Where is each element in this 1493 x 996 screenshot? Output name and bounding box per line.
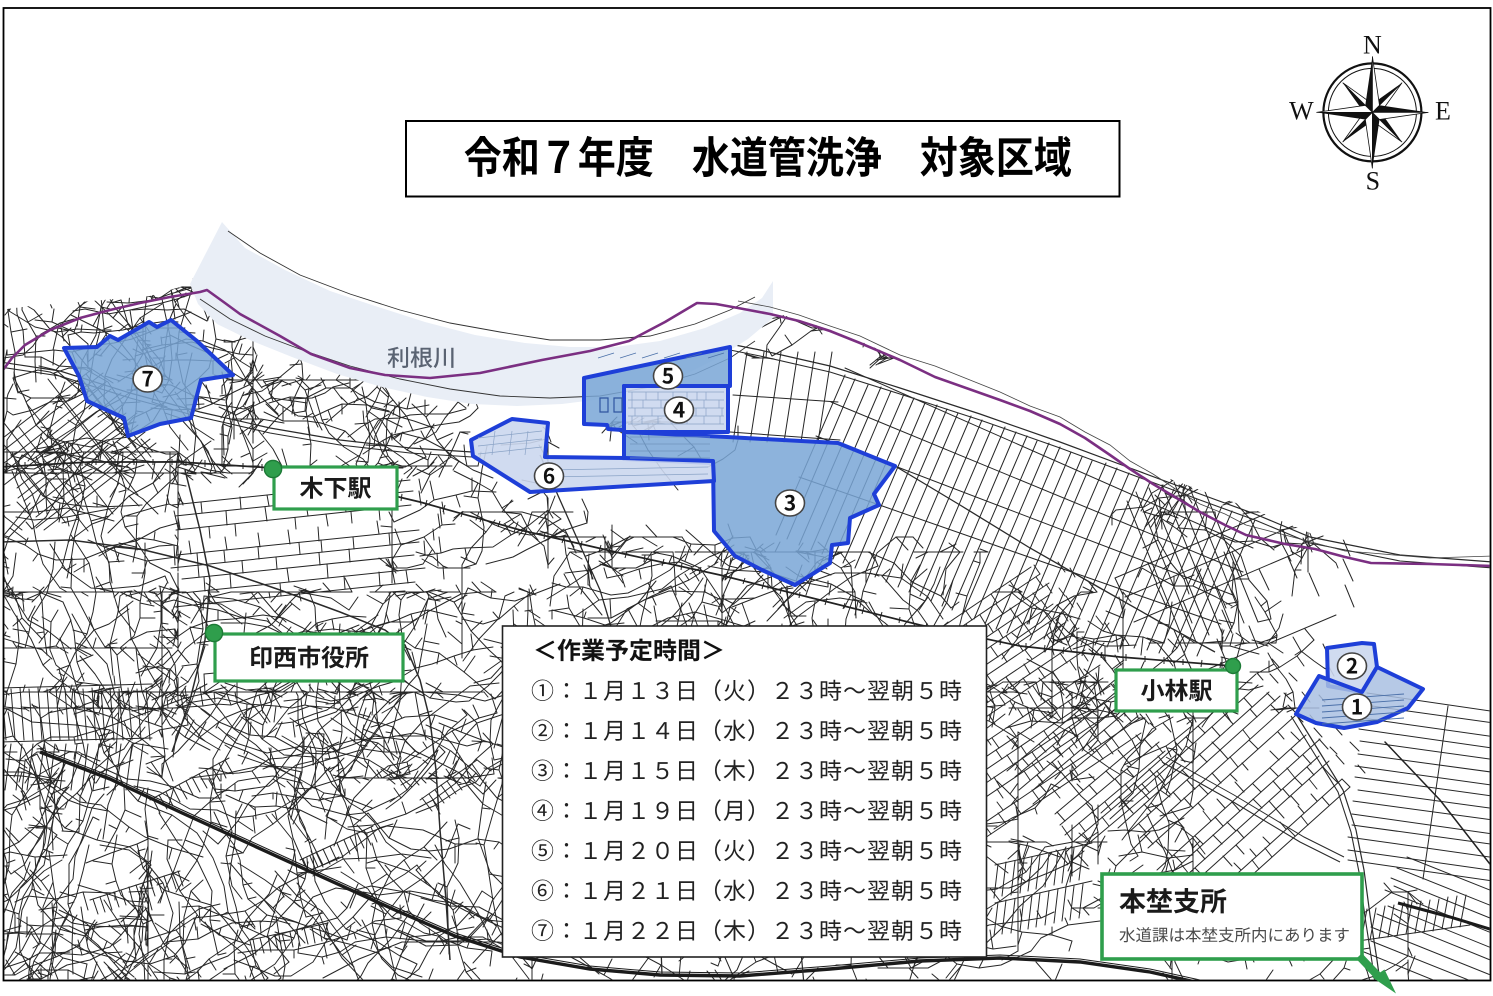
svg-text:W: W <box>1289 96 1314 125</box>
svg-text:N: N <box>1363 30 1382 59</box>
svg-text:S: S <box>1366 166 1380 195</box>
svg-text:E: E <box>1435 96 1451 125</box>
